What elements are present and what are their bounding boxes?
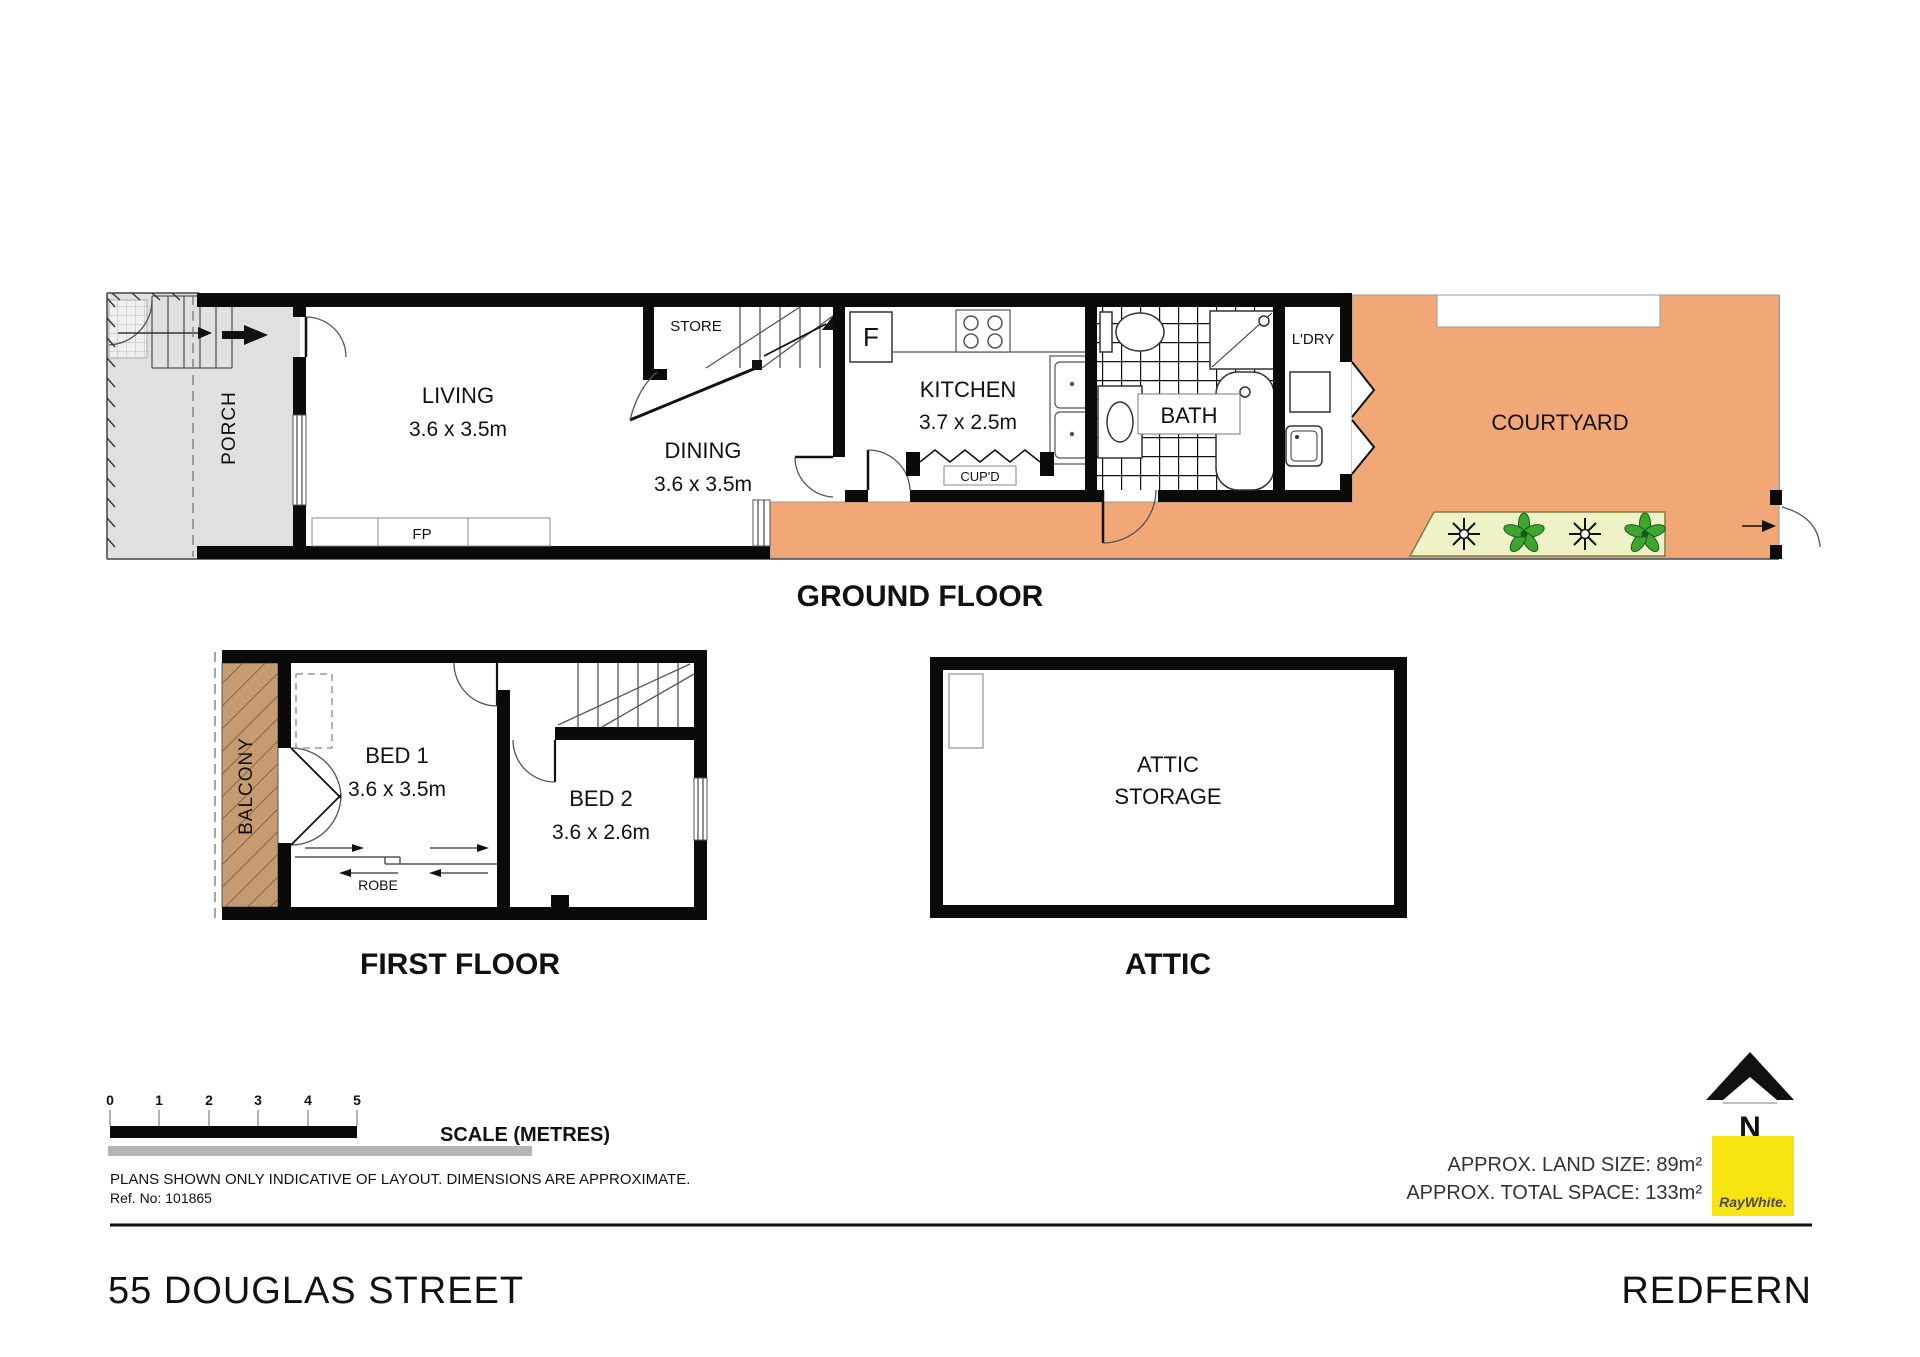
- scale-bar-black: [110, 1126, 357, 1138]
- kitchen-west-wall: [833, 307, 845, 457]
- washing-machine-knob: [1295, 435, 1299, 439]
- first-floor-caption: FIRST FLOOR: [360, 948, 560, 981]
- stair-wall: [555, 727, 695, 740]
- floorplan-drawing: PORCH COURTYARD: [0, 0, 1920, 1357]
- cupboard-label: CUP'D: [960, 469, 999, 484]
- bed2-dim: 3.6 x 2.6m: [552, 821, 650, 844]
- total-space-text: APPROX. TOTAL SPACE: 133m²: [1406, 1182, 1702, 1204]
- disclaimer-text: PLANS SHOWN ONLY INDICATIVE OF LAYOUT. D…: [110, 1171, 690, 1188]
- kitchen-label: KITCHEN: [920, 377, 1017, 402]
- balcony-label: BALCONY: [236, 737, 257, 835]
- attic-east-wall: [1394, 657, 1407, 918]
- suburb: REDFERN: [1621, 1270, 1812, 1312]
- bath-west-wall: [1085, 307, 1097, 502]
- courtyard-awning: [1437, 295, 1660, 327]
- bath-south-wall: [1158, 490, 1347, 502]
- rear-gate-jamb: [1770, 490, 1782, 505]
- kitchen-south-wall: [845, 490, 868, 502]
- scale-tick: 1: [155, 1092, 163, 1108]
- ref-number: Ref. No: 101865: [110, 1190, 212, 1206]
- kitchen-dim: 3.7 x 2.5m: [919, 411, 1017, 434]
- cupboard-jamb: [906, 452, 920, 476]
- robe-label: ROBE: [358, 877, 398, 893]
- living-west-wall: [293, 307, 306, 317]
- bath-east-wall: [1273, 307, 1285, 490]
- toilet: [1116, 313, 1164, 351]
- living-dim: 3.6 x 3.5m: [409, 418, 507, 441]
- scale-title: SCALE (METRES): [440, 1124, 610, 1146]
- land-size-text: APPROX. LAND SIZE: 89m²: [1447, 1154, 1702, 1176]
- street-address: 55 DOUGLAS STREET: [108, 1270, 524, 1312]
- laundry-label: L'DRY: [1292, 331, 1335, 348]
- ground-floor-caption: GROUND FLOOR: [797, 580, 1044, 613]
- bath-label: BATH: [1160, 403, 1217, 428]
- living-west-wall: [293, 357, 306, 415]
- bathtub-drain: [1240, 387, 1250, 397]
- ground-south-wall: [197, 546, 770, 559]
- floorplan-page: PORCH COURTYARD: [0, 0, 1920, 1357]
- bed1-dim: 3.6 x 3.5m: [348, 778, 446, 801]
- balcony-wall: [278, 663, 291, 748]
- entry-arrow-tail: [222, 331, 244, 339]
- laundry-east-wall: [1340, 474, 1352, 502]
- balcony-wall: [278, 843, 291, 907]
- vanity-basin: [1107, 402, 1133, 442]
- stair-newel: [752, 360, 762, 370]
- bed2-label: BED 2: [569, 786, 633, 811]
- dining-label: DINING: [665, 438, 742, 463]
- fridge-label: F: [863, 322, 879, 352]
- scale-bar-grey: [108, 1146, 532, 1156]
- laundry-tub: [1290, 372, 1330, 412]
- attic-caption: ATTIC: [1125, 948, 1211, 981]
- dining-window: [753, 500, 770, 546]
- scale-tick: 5: [353, 1092, 361, 1108]
- sink-drain: [1070, 382, 1074, 386]
- sink-drain: [1070, 432, 1074, 436]
- attic-west-wall: [930, 657, 943, 918]
- first-north-wall: [222, 650, 707, 663]
- fireplace-label: FP: [412, 526, 431, 543]
- shower-head: [1259, 316, 1269, 326]
- courtyard-label: COURTYARD: [1491, 410, 1628, 435]
- ground-north-wall: [197, 293, 1352, 307]
- cooktop: [956, 310, 1010, 352]
- scale-tick: 3: [254, 1092, 262, 1108]
- bed2-wall-stub: [551, 895, 569, 907]
- kitchen-south-wall: [910, 490, 1103, 502]
- living-label: LIVING: [422, 383, 494, 408]
- attic-storage-label-line2: STORAGE: [1114, 784, 1221, 809]
- living-window: [293, 415, 306, 505]
- rear-gate-jamb: [1770, 545, 1782, 559]
- bed2-window: [694, 778, 707, 840]
- bed1-label: BED 1: [365, 743, 429, 768]
- attic-south-wall: [930, 905, 1407, 918]
- first-south-wall: [222, 907, 707, 920]
- cupboard-jamb: [1040, 452, 1054, 476]
- scale-tick: 0: [106, 1092, 114, 1108]
- toilet-cistern: [1100, 312, 1112, 352]
- dining-dim: 3.6 x 3.5m: [654, 473, 752, 496]
- attic-north-wall: [930, 657, 1407, 670]
- scale-tick: 4: [304, 1092, 312, 1108]
- raywhite-logo-text: RayWhite.: [1719, 1194, 1787, 1210]
- laundry-east-wall: [1340, 307, 1352, 362]
- scale-tick: 2: [205, 1092, 213, 1108]
- porch-label: PORCH: [219, 391, 240, 465]
- living-west-wall: [293, 505, 306, 546]
- store-label: STORE: [670, 318, 721, 335]
- store-wall: [643, 307, 654, 369]
- attic-storage-label-line1: ATTIC: [1137, 752, 1199, 777]
- attic-hatch: [949, 674, 983, 748]
- bed-divider-wall: [497, 690, 510, 907]
